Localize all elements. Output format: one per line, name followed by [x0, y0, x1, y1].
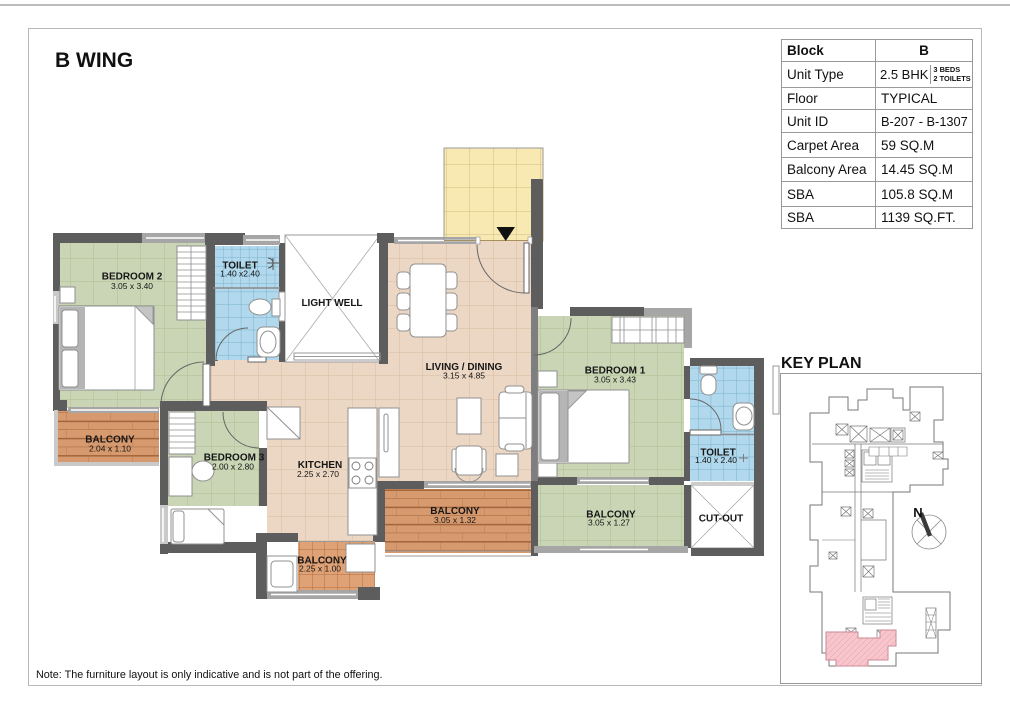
svg-text:N: N	[913, 505, 922, 520]
